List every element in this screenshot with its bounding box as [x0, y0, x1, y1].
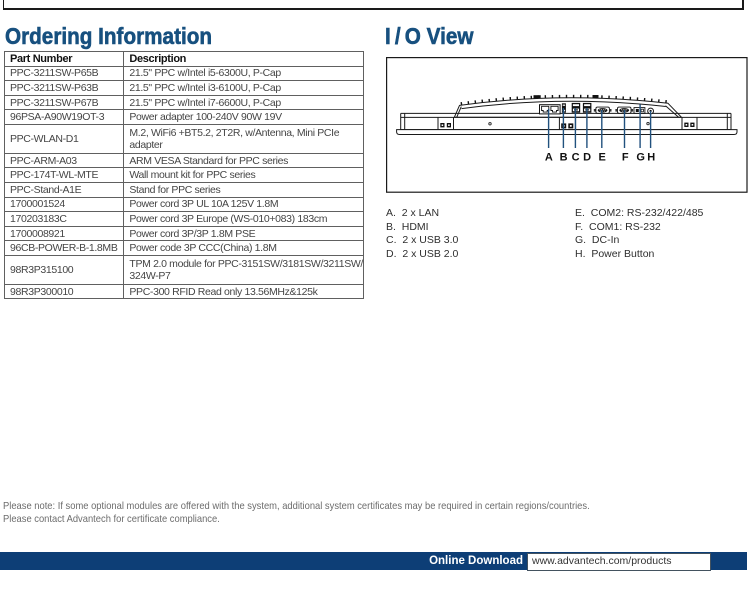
svg-text:G: G [636, 152, 645, 164]
svg-text:B: B [560, 152, 568, 164]
svg-text:C: C [572, 152, 580, 164]
svg-text:D: D [583, 152, 591, 164]
svg-text:A: A [545, 152, 553, 164]
svg-text:H: H [647, 152, 655, 164]
svg-text:F: F [622, 152, 629, 164]
svg-text:E: E [599, 152, 606, 164]
